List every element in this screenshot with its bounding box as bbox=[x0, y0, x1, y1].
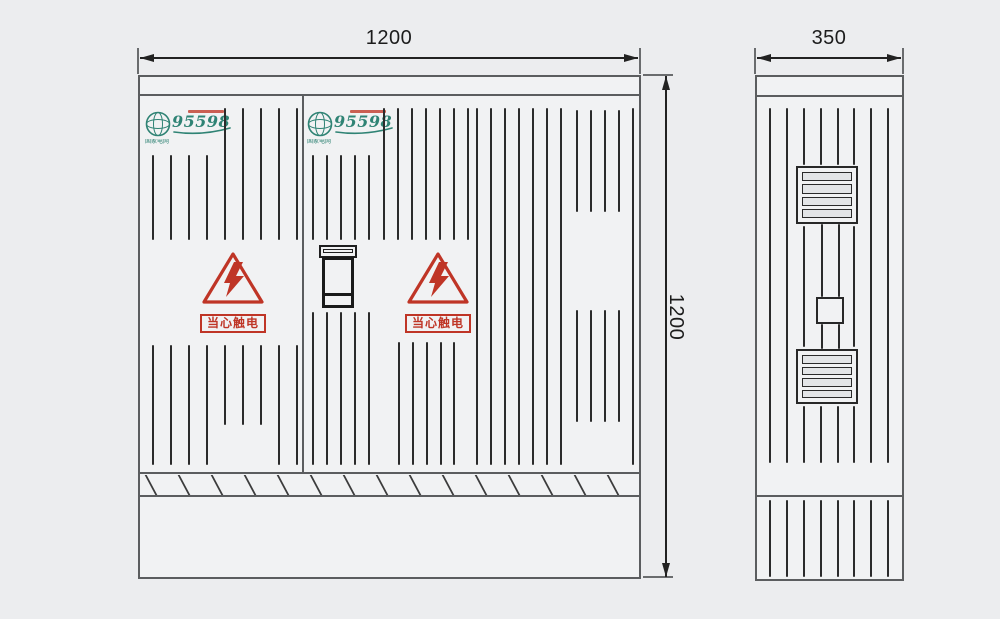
vent-slot-line bbox=[604, 110, 606, 212]
louver-slat bbox=[802, 209, 852, 218]
side-top-rail-line bbox=[755, 95, 904, 97]
hotline-tagline-mark bbox=[350, 110, 386, 113]
front-top-rail-line bbox=[138, 94, 641, 96]
warning-text: 当心触电 bbox=[200, 314, 266, 333]
vent-slot-line bbox=[426, 342, 428, 465]
vent-slot-line bbox=[837, 406, 839, 463]
vent-slot-line bbox=[769, 500, 771, 577]
vent-slot-line bbox=[590, 310, 592, 422]
front-height-label: 1200 bbox=[646, 287, 706, 347]
electric-shock-warning-sign: 当心触电 bbox=[200, 251, 266, 333]
vent-slot-line bbox=[439, 108, 441, 240]
vent-slot-line bbox=[170, 345, 172, 465]
vent-slot-line bbox=[532, 108, 534, 465]
vent-slot-line bbox=[853, 500, 855, 577]
vent-slot-line bbox=[803, 108, 805, 165]
vent-slot-line bbox=[546, 108, 548, 465]
louver-slat bbox=[802, 367, 852, 376]
vent-slot-line bbox=[296, 108, 298, 240]
door-handle-lock bbox=[319, 244, 359, 310]
vent-slot-line bbox=[368, 155, 370, 240]
vent-slot-line bbox=[188, 345, 190, 465]
vent-slot-line bbox=[340, 312, 342, 465]
louver-slat bbox=[802, 390, 852, 399]
arrow-right-icon bbox=[887, 54, 901, 62]
electric-shock-warning-sign: 当心触电 bbox=[405, 251, 471, 333]
vent-slot-line bbox=[632, 108, 634, 465]
vent-slot-line bbox=[242, 108, 244, 240]
vent-slot-line bbox=[769, 108, 771, 463]
vent-slot-line bbox=[278, 345, 280, 465]
warning-triangle-icon bbox=[201, 251, 265, 305]
handle-body bbox=[322, 257, 354, 308]
arrow-down-icon bbox=[662, 563, 670, 577]
arrow-right-icon bbox=[624, 54, 638, 62]
vent-slot-line bbox=[887, 108, 889, 463]
vent-slot-line bbox=[786, 108, 788, 463]
vent-slot-line bbox=[453, 342, 455, 465]
vent-slot-line bbox=[820, 500, 822, 577]
vent-slot-line bbox=[838, 324, 840, 349]
vent-slot-line bbox=[618, 110, 620, 212]
vent-slot-line bbox=[853, 108, 855, 165]
warning-triangle-icon bbox=[406, 251, 470, 305]
side-width-label: 350 bbox=[779, 27, 879, 50]
vent-slot-line bbox=[326, 312, 328, 465]
vent-slot-line bbox=[870, 108, 872, 463]
vent-slot-line bbox=[838, 224, 840, 297]
logo-brand-text: 国家电网 bbox=[307, 139, 337, 145]
vent-slot-line bbox=[821, 324, 823, 349]
cabinet-dimension-drawing: 95598 国家电网 95598 国家电网 bbox=[0, 0, 1000, 619]
vent-slot-line bbox=[820, 108, 822, 165]
vent-slot-line bbox=[278, 108, 280, 240]
vent-slot-line bbox=[618, 310, 620, 422]
vent-slot-line bbox=[870, 500, 872, 577]
globe-icon bbox=[145, 111, 171, 137]
vent-slot-line bbox=[853, 406, 855, 463]
warning-text: 当心触电 bbox=[405, 314, 471, 333]
vent-slot-line bbox=[412, 342, 414, 465]
vent-slot-line bbox=[425, 108, 427, 240]
logo-number: 95598 bbox=[334, 114, 394, 130]
vent-slot-line bbox=[837, 500, 839, 577]
vent-slot-line bbox=[453, 108, 455, 240]
vent-slot-line bbox=[887, 500, 889, 577]
vent-slot-line bbox=[354, 155, 356, 240]
vent-slot-line bbox=[853, 226, 855, 347]
side-cabinet-outline bbox=[755, 75, 904, 581]
louver-vent-panel bbox=[796, 349, 858, 404]
vent-slot-line bbox=[576, 110, 578, 212]
vent-slot-line bbox=[576, 310, 578, 422]
vent-slot-line bbox=[821, 224, 823, 297]
vent-slot-line bbox=[312, 155, 314, 240]
cable-connector-box bbox=[816, 297, 844, 324]
vent-slot-line bbox=[786, 500, 788, 577]
vent-slot-line bbox=[383, 108, 385, 240]
vent-slot-line bbox=[398, 342, 400, 465]
louver-slat bbox=[802, 172, 852, 181]
front-width-label: 1200 bbox=[339, 27, 439, 50]
vent-slot-line bbox=[224, 345, 226, 425]
vent-slot-line bbox=[242, 345, 244, 425]
arrow-left-icon bbox=[140, 54, 154, 62]
state-grid-logo: 95598 国家电网 bbox=[307, 106, 399, 150]
logo-brand-text: 国家电网 bbox=[145, 139, 175, 145]
vent-slot-line bbox=[837, 108, 839, 165]
vent-slot-line bbox=[803, 226, 805, 347]
vent-slot-line bbox=[803, 406, 805, 463]
vent-slot-line bbox=[152, 155, 154, 240]
vent-slot-line bbox=[206, 155, 208, 240]
louver-slat bbox=[802, 355, 852, 364]
louver-vent-panel bbox=[796, 166, 858, 224]
vent-slot-line bbox=[604, 310, 606, 422]
logo-number: 95598 bbox=[172, 114, 232, 130]
vent-slot-line bbox=[411, 108, 413, 240]
hotline-tagline-mark bbox=[188, 110, 224, 113]
arrow-up-icon bbox=[662, 76, 670, 90]
vent-slot-line bbox=[490, 108, 492, 465]
vent-slot-line bbox=[260, 345, 262, 425]
vent-slot-line bbox=[296, 345, 298, 465]
vent-slot-line bbox=[354, 312, 356, 465]
vent-slot-line bbox=[152, 345, 154, 465]
vent-slot-line bbox=[467, 108, 469, 240]
vent-slot-line bbox=[820, 406, 822, 463]
vent-slot-line bbox=[518, 108, 520, 465]
side-lower-divider-line bbox=[755, 495, 904, 497]
vent-slot-line bbox=[224, 108, 226, 240]
vent-slot-line bbox=[170, 155, 172, 240]
vent-slot-line bbox=[440, 342, 442, 465]
vent-slot-line bbox=[476, 108, 478, 465]
vent-slot-line bbox=[188, 155, 190, 240]
louver-slat bbox=[802, 378, 852, 387]
vent-slot-line bbox=[340, 155, 342, 240]
vent-slot-line bbox=[206, 345, 208, 465]
louver-slat bbox=[802, 197, 852, 206]
louver-slat bbox=[802, 184, 852, 193]
vent-slot-line bbox=[368, 312, 370, 465]
vent-slot-line bbox=[560, 108, 562, 465]
vent-slot-line bbox=[312, 312, 314, 465]
vent-slot-line bbox=[326, 155, 328, 240]
vent-slot-line bbox=[397, 108, 399, 240]
door-divider-line bbox=[302, 94, 304, 474]
vent-slot-line bbox=[260, 108, 262, 240]
front-plinth-top-line bbox=[138, 495, 641, 497]
vent-slot-line bbox=[504, 108, 506, 465]
vent-slot-line bbox=[803, 500, 805, 577]
globe-icon bbox=[307, 111, 333, 137]
vent-slot-line bbox=[590, 110, 592, 212]
arrow-left-icon bbox=[757, 54, 771, 62]
front-door-bottom-line bbox=[138, 472, 641, 474]
